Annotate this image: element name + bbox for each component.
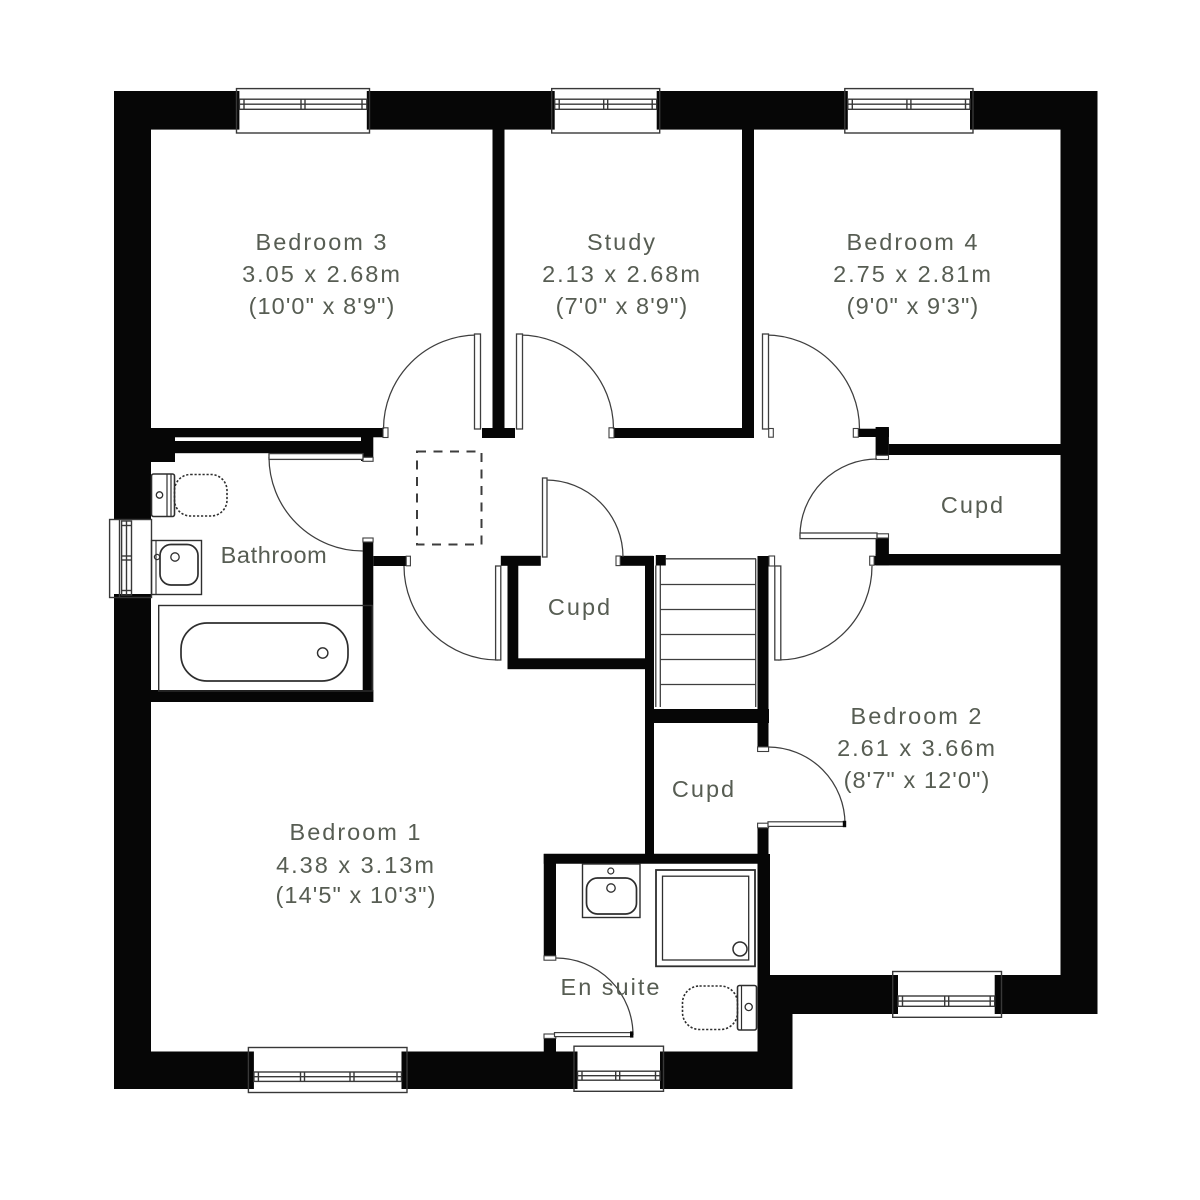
svg-text:2.61 x 3.66m: 2.61 x 3.66m — [837, 735, 997, 761]
svg-text:Bedroom 1: Bedroom 1 — [290, 819, 423, 845]
svg-text:2.75 x 2.81m: 2.75 x 2.81m — [833, 261, 993, 287]
svg-text:(10'0" x 8'9"): (10'0" x 8'9") — [249, 293, 396, 319]
svg-text:Cupd: Cupd — [548, 594, 612, 620]
svg-text:Cupd: Cupd — [672, 776, 736, 802]
svg-text:(7'0" x 8'9"): (7'0" x 8'9") — [556, 293, 689, 319]
svg-text:2.13 x 2.68m: 2.13 x 2.68m — [542, 261, 702, 287]
svg-text:En suite: En suite — [561, 974, 662, 1000]
svg-text:Cupd: Cupd — [941, 492, 1005, 518]
svg-text:3.05 x 2.68m: 3.05 x 2.68m — [242, 261, 402, 287]
svg-text:Bedroom 4: Bedroom 4 — [847, 229, 980, 255]
svg-text:4.38 x 3.13m: 4.38 x 3.13m — [276, 852, 436, 878]
svg-text:Bathroom: Bathroom — [221, 542, 328, 568]
svg-text:(8'7" x 12'0"): (8'7" x 12'0") — [844, 767, 991, 793]
svg-text:Bedroom 2: Bedroom 2 — [851, 703, 984, 729]
svg-text:Bedroom 3: Bedroom 3 — [256, 229, 389, 255]
svg-text:(9'0" x 9'3"): (9'0" x 9'3") — [847, 293, 980, 319]
svg-text:Study: Study — [587, 229, 657, 255]
svg-text:(14'5" x 10'3"): (14'5" x 10'3") — [275, 882, 436, 908]
